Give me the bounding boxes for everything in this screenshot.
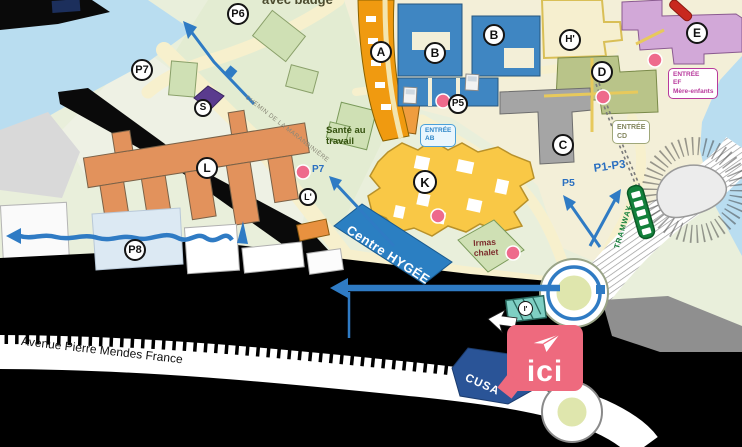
route-label-p5: P5 [562, 177, 575, 189]
ticket-kiosk-icon [465, 74, 479, 91]
ticket-kiosk-icon [403, 87, 417, 104]
marker-label: ici [507, 355, 583, 389]
building-label-l: L [196, 157, 218, 179]
badge-note: avec badge [262, 0, 333, 7]
sante-line2: travail [326, 136, 366, 147]
roundabout-south [542, 382, 602, 442]
building-label-b-east: B [483, 24, 505, 46]
building-label-c: C [552, 134, 574, 156]
sante-line1: Santé au [326, 125, 366, 136]
entrance-dot [596, 90, 610, 104]
entrance-ab-line2: AB [425, 135, 451, 143]
entrance-dot [296, 165, 310, 179]
entrance-ab-box: ENTRÉE AB [420, 124, 456, 147]
entrance-dot [506, 246, 520, 260]
entrance-dot [431, 209, 445, 223]
entrance-ef-box: ENTRÉE EF Mère-enfants [668, 68, 718, 99]
entrance-ef-line2: EF [673, 79, 713, 87]
route-label-p7: P7 [312, 164, 324, 175]
building-label-e: E [686, 22, 708, 44]
parking-label-p8: P8 [124, 239, 146, 261]
entrance-cd-line2: CD [617, 132, 645, 141]
wing-gap-1 [428, 78, 432, 106]
entrance-ef-line3: Mère-enfants [673, 88, 713, 96]
parking-label-p6: P6 [227, 3, 249, 25]
entrance-ab-line1: ENTRÉE [425, 127, 451, 135]
entrance-dot [648, 53, 662, 67]
entrance-ef-line1: ENTRÉE [673, 71, 713, 79]
building-label-d: D [591, 61, 613, 83]
map-base-layer [0, 0, 742, 447]
you-are-here-marker: ici [507, 325, 583, 391]
parking-label-p5: P5 [448, 94, 468, 114]
entrance-cd-box: ENTRÉE CD [612, 120, 650, 144]
campus-map: avec badge CHEMIN DE LA MARANDINIÈRE Ave… [0, 0, 742, 447]
building-label-l-prime: L' [299, 188, 317, 206]
navy-building [52, 0, 81, 13]
building-label-b-west: B [424, 42, 446, 64]
building-label-h-prime: H' [559, 29, 581, 51]
irmas-line2: chalet [474, 247, 499, 258]
parking-label-p7: P7 [131, 59, 153, 81]
building-b-east-court [504, 48, 534, 68]
white-box-building-3 [307, 249, 344, 275]
place-irmas-chalet: Irmas chalet [473, 237, 499, 259]
building-label-i-prime: I' [518, 301, 533, 316]
paper-plane-icon [531, 329, 560, 355]
building-label-k: K [413, 170, 437, 194]
place-sante-travail: Santé au travail [326, 125, 366, 148]
building-label-a: A [370, 41, 392, 63]
green-building-2 [169, 61, 198, 97]
building-k [368, 140, 534, 236]
building-label-s: S [194, 99, 212, 117]
entrance-cd-line1: ENTRÉE [617, 123, 645, 132]
route-stop-marker [596, 285, 605, 294]
white-box-building-1 [184, 224, 239, 274]
